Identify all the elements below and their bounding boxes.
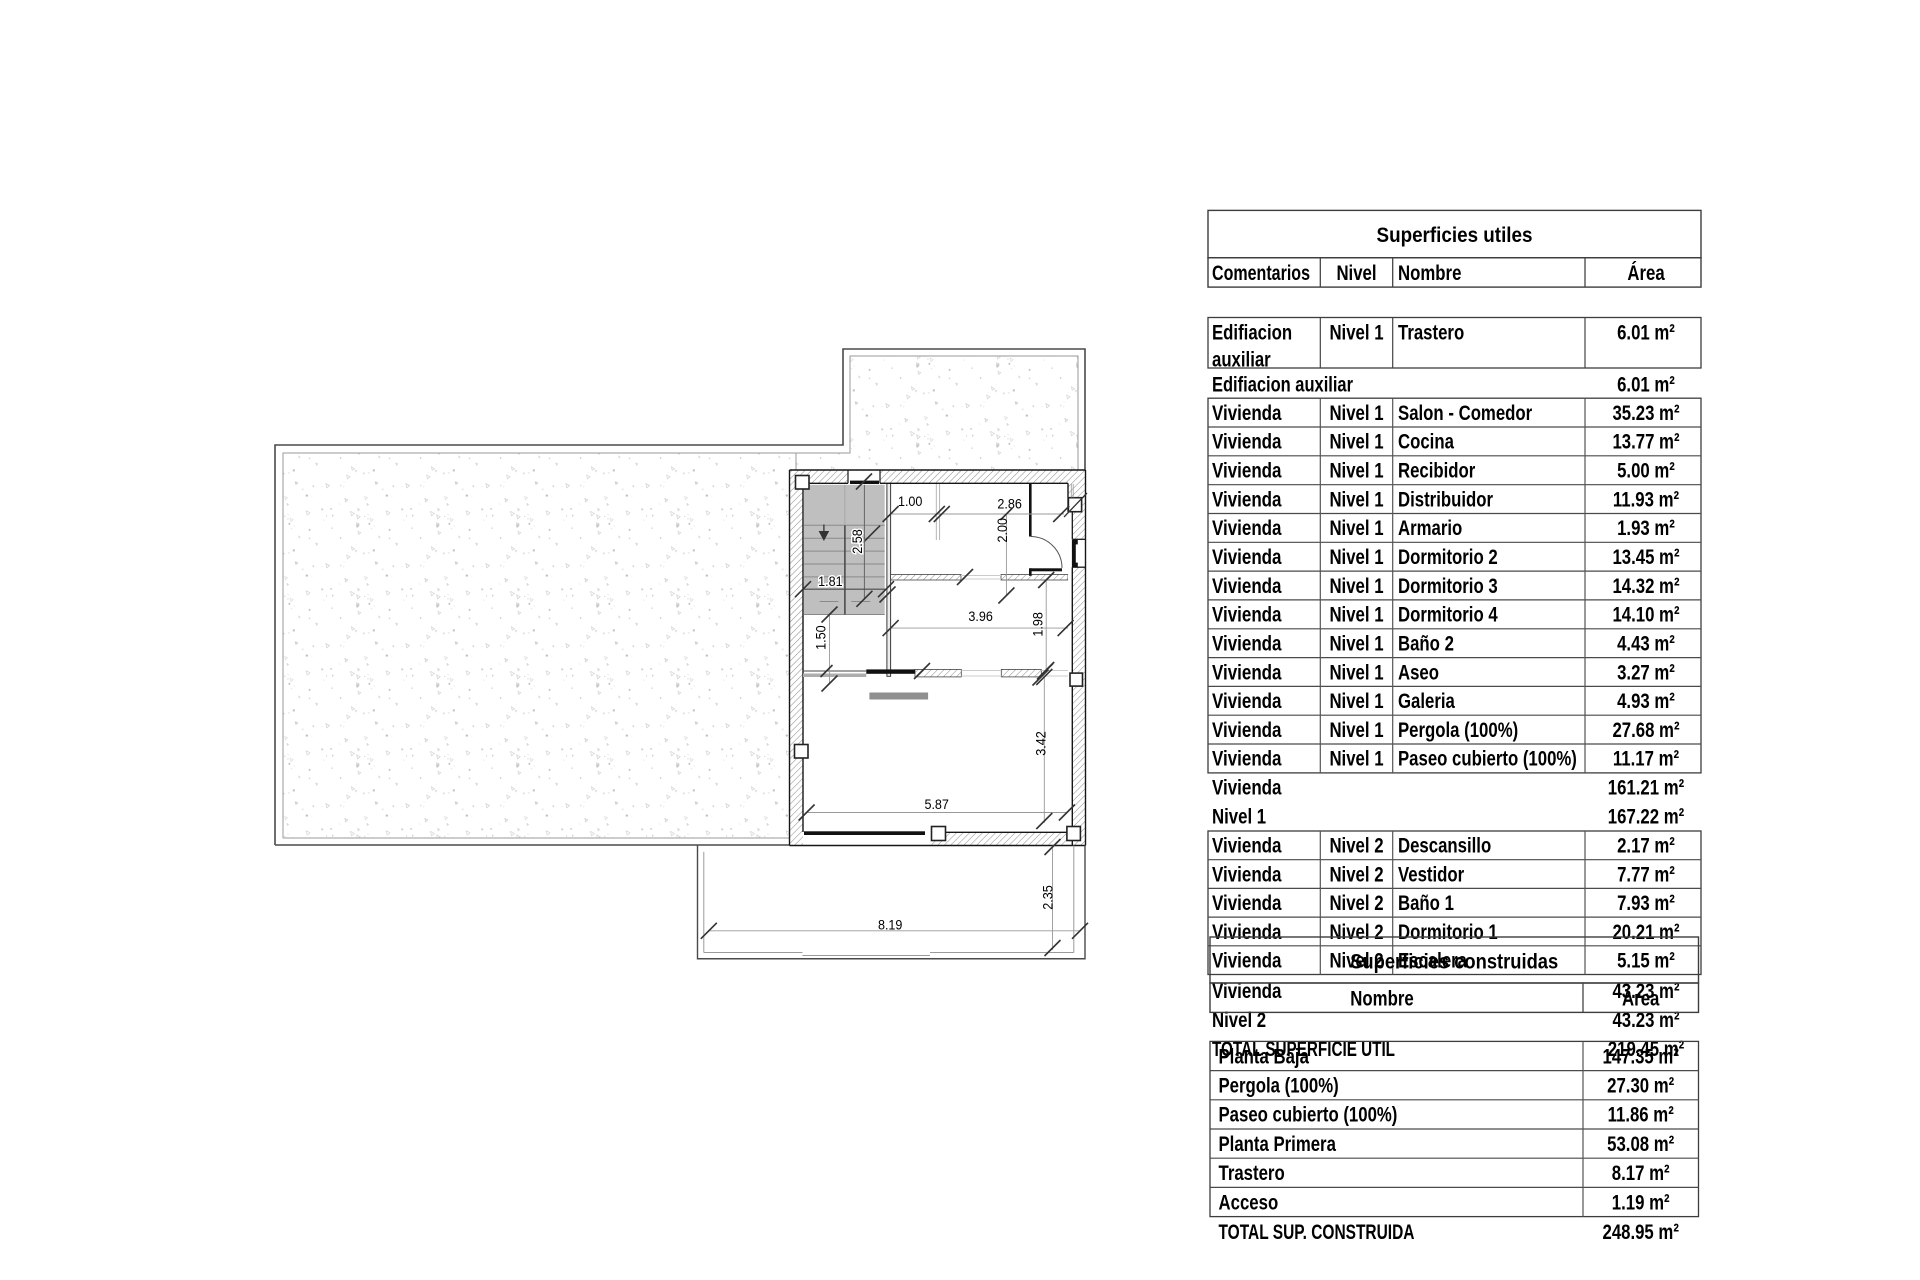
svg-text:Superficies construidas: Superficies construidas (1350, 950, 1558, 974)
svg-text:Dormitorio 1: Dormitorio 1 (1398, 920, 1498, 944)
svg-text:2.86: 2.86 (997, 495, 1022, 511)
svg-text:1.98: 1.98 (1029, 612, 1045, 637)
svg-text:Nivel 1: Nivel 1 (1329, 747, 1383, 771)
svg-text:14.10 m²: 14.10 m² (1612, 603, 1679, 627)
svg-text:Planta Primera: Planta Primera (1219, 1132, 1337, 1156)
svg-text:167.22 m²: 167.22 m² (1608, 804, 1684, 828)
svg-text:Área: Área (1622, 985, 1660, 1010)
svg-text:2.35: 2.35 (1040, 885, 1056, 910)
svg-text:Baño 1: Baño 1 (1398, 891, 1454, 915)
svg-text:Descansillo: Descansillo (1398, 834, 1491, 858)
svg-text:Nivel 1: Nivel 1 (1329, 430, 1383, 454)
svg-text:Vivienda: Vivienda (1212, 516, 1282, 540)
svg-text:6.01 m²: 6.01 m² (1617, 373, 1675, 397)
svg-text:Acceso: Acceso (1219, 1190, 1279, 1214)
svg-text:Distribuidor: Distribuidor (1398, 487, 1493, 511)
svg-text:Galeria: Galeria (1398, 689, 1456, 713)
svg-text:8.17 m²: 8.17 m² (1612, 1161, 1670, 1185)
svg-text:Armario: Armario (1398, 516, 1462, 540)
svg-text:5.15 m²: 5.15 m² (1617, 948, 1675, 972)
svg-text:Vivienda: Vivienda (1212, 603, 1282, 627)
svg-text:3.27 m²: 3.27 m² (1617, 660, 1675, 684)
svg-text:Nivel 2: Nivel 2 (1329, 891, 1383, 915)
svg-text:161.21 m²: 161.21 m² (1608, 776, 1684, 800)
svg-text:1.00: 1.00 (898, 493, 923, 509)
svg-text:Nivel 1: Nivel 1 (1329, 689, 1383, 713)
svg-text:43.23 m²: 43.23 m² (1612, 1008, 1679, 1032)
svg-text:Dormitorio 2: Dormitorio 2 (1398, 545, 1498, 569)
svg-text:Vivienda: Vivienda (1212, 632, 1282, 656)
svg-text:2.58: 2.58 (849, 529, 865, 554)
svg-text:1.81: 1.81 (818, 573, 843, 589)
svg-text:Vivienda: Vivienda (1212, 834, 1282, 858)
svg-text:Vivienda: Vivienda (1212, 401, 1282, 425)
svg-text:13.77 m²: 13.77 m² (1612, 430, 1679, 454)
svg-text:Vivienda: Vivienda (1212, 574, 1282, 598)
svg-text:5.87: 5.87 (924, 796, 949, 812)
svg-text:Nivel 1: Nivel 1 (1329, 718, 1383, 742)
svg-text:27.68 m²: 27.68 m² (1612, 718, 1679, 742)
svg-text:Paseo cubierto (100%): Paseo cubierto (100%) (1398, 747, 1577, 771)
svg-text:1.19 m²: 1.19 m² (1612, 1190, 1670, 1214)
svg-text:Trastero: Trastero (1398, 321, 1464, 345)
svg-text:Nivel 2: Nivel 2 (1329, 862, 1383, 886)
svg-text:Vivienda: Vivienda (1212, 776, 1282, 800)
svg-text:Nivel 1: Nivel 1 (1329, 660, 1383, 684)
svg-text:Vivienda: Vivienda (1212, 660, 1282, 684)
svg-text:1.93 m²: 1.93 m² (1617, 516, 1675, 540)
svg-text:8.19: 8.19 (878, 917, 903, 933)
svg-text:Planta Baja: Planta Baja (1219, 1044, 1310, 1068)
svg-text:7.77 m²: 7.77 m² (1617, 862, 1675, 886)
svg-text:Nivel 1: Nivel 1 (1329, 516, 1383, 540)
svg-text:Vivienda: Vivienda (1212, 718, 1282, 742)
svg-text:Vestidor: Vestidor (1398, 862, 1465, 886)
svg-text:Nivel 1: Nivel 1 (1329, 321, 1383, 345)
svg-text:147.35 m²: 147.35 m² (1603, 1044, 1679, 1068)
svg-text:53.08 m²: 53.08 m² (1607, 1132, 1674, 1156)
svg-text:3.42: 3.42 (1032, 731, 1048, 756)
svg-text:Trastero: Trastero (1219, 1161, 1285, 1185)
svg-text:Nivel 1: Nivel 1 (1329, 401, 1383, 425)
svg-text:Vivienda: Vivienda (1212, 948, 1282, 972)
svg-text:Dormitorio 3: Dormitorio 3 (1398, 574, 1498, 598)
svg-text:Recibidor: Recibidor (1398, 459, 1476, 483)
svg-text:TOTAL SUP. CONSTRUIDA: TOTAL SUP. CONSTRUIDA (1219, 1220, 1415, 1244)
svg-text:Nivel 1: Nivel 1 (1329, 487, 1383, 511)
svg-text:13.45 m²: 13.45 m² (1612, 545, 1679, 569)
svg-text:Nombre: Nombre (1398, 261, 1461, 285)
svg-text:11.17 m²: 11.17 m² (1613, 747, 1679, 771)
svg-text:5.00 m²: 5.00 m² (1617, 459, 1675, 483)
svg-text:20.21 m²: 20.21 m² (1612, 920, 1679, 944)
svg-text:7.93 m²: 7.93 m² (1617, 891, 1675, 915)
svg-text:Vivienda: Vivienda (1212, 459, 1282, 483)
svg-text:Pergola (100%): Pergola (100%) (1219, 1074, 1339, 1098)
svg-text:Nivel 1: Nivel 1 (1329, 545, 1383, 569)
svg-text:11.93 m²: 11.93 m² (1613, 487, 1679, 511)
svg-text:14.32 m²: 14.32 m² (1612, 574, 1679, 598)
svg-text:Aseo: Aseo (1398, 660, 1439, 684)
svg-text:Nivel 1: Nivel 1 (1329, 574, 1383, 598)
svg-text:Área: Área (1627, 260, 1665, 285)
svg-text:Vivienda: Vivienda (1212, 891, 1282, 915)
svg-text:248.95 m²: 248.95 m² (1603, 1220, 1679, 1244)
svg-text:Vivienda: Vivienda (1212, 862, 1282, 886)
svg-text:6.01 m²: 6.01 m² (1617, 321, 1675, 345)
svg-text:Nivel 2: Nivel 2 (1212, 1008, 1266, 1032)
svg-text:4.43 m²: 4.43 m² (1617, 632, 1675, 656)
svg-text:auxiliar: auxiliar (1212, 348, 1271, 372)
svg-text:27.30 m²: 27.30 m² (1607, 1074, 1674, 1098)
svg-text:Nombre: Nombre (1350, 986, 1413, 1010)
svg-text:Paseo cubierto (100%): Paseo cubierto (100%) (1219, 1103, 1398, 1127)
svg-text:11.86 m²: 11.86 m² (1608, 1103, 1674, 1127)
svg-text:1.50: 1.50 (813, 625, 829, 650)
svg-text:Vivienda: Vivienda (1212, 920, 1282, 944)
svg-text:Cocina: Cocina (1398, 430, 1455, 454)
svg-text:2.00: 2.00 (994, 518, 1010, 543)
svg-text:Edifiacion auxiliar: Edifiacion auxiliar (1212, 373, 1353, 397)
svg-text:Dormitorio 4: Dormitorio 4 (1398, 603, 1498, 627)
svg-text:2.17 m²: 2.17 m² (1617, 834, 1675, 858)
svg-text:Nivel 1: Nivel 1 (1212, 804, 1266, 828)
svg-text:Nivel 1: Nivel 1 (1329, 603, 1383, 627)
svg-text:Vivienda: Vivienda (1212, 487, 1282, 511)
svg-text:Vivienda: Vivienda (1212, 545, 1282, 569)
svg-text:35.23 m²: 35.23 m² (1612, 401, 1679, 425)
svg-text:4.93 m²: 4.93 m² (1617, 689, 1675, 713)
svg-text:Superficies utiles: Superficies utiles (1377, 223, 1533, 247)
svg-text:Vivienda: Vivienda (1212, 689, 1282, 713)
svg-text:Nivel 1: Nivel 1 (1329, 632, 1383, 656)
svg-text:Nivel 2: Nivel 2 (1329, 834, 1383, 858)
svg-text:3.96: 3.96 (968, 608, 993, 624)
svg-text:Salon - Comedor: Salon - Comedor (1398, 401, 1533, 425)
svg-text:Nivel 1: Nivel 1 (1329, 459, 1383, 483)
svg-text:Nivel 2: Nivel 2 (1329, 920, 1383, 944)
svg-text:Vivienda: Vivienda (1212, 747, 1282, 771)
svg-text:Pergola (100%): Pergola (100%) (1398, 718, 1518, 742)
svg-text:Nivel: Nivel (1336, 261, 1376, 285)
svg-text:Comentarios: Comentarios (1212, 261, 1310, 285)
svg-text:Edifiacion: Edifiacion (1212, 321, 1292, 345)
svg-text:Baño 2: Baño 2 (1398, 632, 1454, 656)
svg-text:Vivienda: Vivienda (1212, 430, 1282, 454)
